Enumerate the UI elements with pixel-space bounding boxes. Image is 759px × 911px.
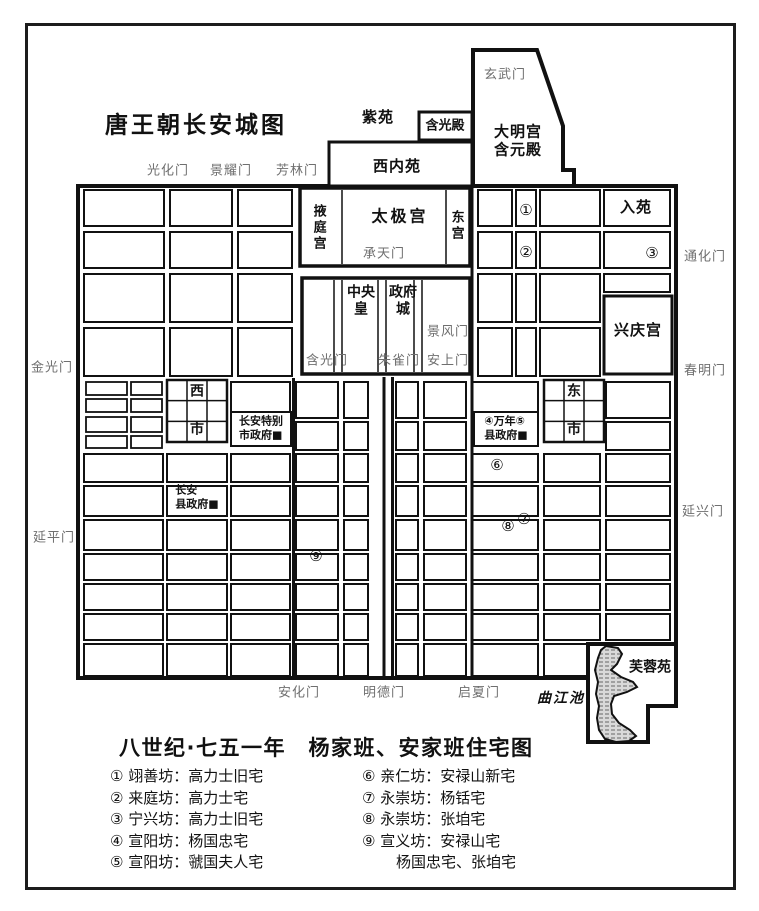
taiji-palace-label: 太极宫 [371,208,428,227]
marker-3: ③ [645,245,658,263]
marker-7: ⑦ [517,511,530,529]
changan-gov-label: 长安 县政府■ [175,483,218,511]
changan-city-map-page: 唐王朝长安城图玄武门紫苑含光殿大明宫 含元殿西内苑光化门景耀门芳林门掖庭宫太极宫… [0,0,759,911]
west-market-shi: 市 [190,422,204,439]
gate-chengtian: 承天门 [363,246,405,261]
ruyuan-label: 入苑 [620,199,652,217]
marker-1: ① [519,202,532,220]
gate-fanglin: 芳林门 [276,163,318,178]
east-market-shi: 市 [567,422,581,439]
legend-column-right: ⑥ 亲仁坊：安禄山新宅⑦ 永崇坊：杨铦宅⑧ 永崇坊：张垍宅⑨ 宣义坊：安禄山宅杨… [362,766,516,874]
marker-2: ② [519,244,532,262]
legend-item-left-3: ④ 宣阳坊：杨国忠宅 [110,831,263,853]
xingqing-palace-label: 兴庆宫 [614,322,662,340]
daming-palace-label: 大明宫 含元殿 [494,123,542,158]
legend-item-left-0: ① 翊善坊：高力士旧宅 [110,766,263,788]
gate-anshang: 安上门 [427,353,469,368]
legend-item-right-4: 杨国忠宅、张垍宅 [396,852,516,874]
gate-xuanwu: 玄武门 [484,67,526,82]
gate-anhua: 安化门 [278,685,320,700]
legend-item-left-2: ③ 宁兴坊：高力士旧宅 [110,809,263,831]
gate-tonghua: 通化门 [684,249,726,264]
east-market-dong: 东 [567,384,581,401]
wannian-gov-label: ④万年⑤ 县政府■ [484,414,527,442]
legend-item-left-1: ② 来庭坊：高力士宅 [110,788,263,810]
gov-city-label: 政府 城 [389,284,417,317]
east-palace-label: 东宫 [448,210,463,242]
gate-jingfeng: 景风门 [427,324,469,339]
marker-6: ⑥ [490,457,503,475]
gate-mingde: 明德门 [363,685,405,700]
gate-qixia: 启夏门 [458,685,500,700]
marker-8: ⑧ [501,518,514,536]
gate-yanxing: 延兴门 [682,504,724,519]
gate-jingyao: 景耀门 [210,163,252,178]
marker-9: ⑨ [309,548,322,566]
west-market-xi: 西 [190,384,204,401]
gate-chunming: 春明门 [684,363,726,378]
gate-yanping: 延平门 [33,530,75,545]
legend-column-left: ① 翊善坊：高力士旧宅② 来庭坊：高力士宅③ 宁兴坊：高力士旧宅④ 宣阳坊：杨国… [110,766,263,874]
gate-guanghua: 光化门 [147,163,189,178]
legend-item-right-1: ⑦ 永崇坊：杨铦宅 [362,788,516,810]
ziyuan-label: 紫苑 [362,109,394,127]
gate-zhuque: 朱雀门 [378,353,420,368]
central-gov-label: 中央 皇 [347,284,375,317]
gate-hanguangmen: 含光门 [306,353,348,368]
legend-item-right-0: ⑥ 亲仁坊：安禄山新宅 [362,766,516,788]
furong-garden-label: 芙蓉苑 [629,660,671,677]
gate-jinguang: 金光门 [31,360,73,375]
legend-title: 八世纪·七五一年 杨家班、安家班住宅图 [119,732,533,762]
legend-item-left-4: ⑤ 宣阳坊：虢国夫人宅 [110,852,263,874]
qujiang-pond-label: 曲江池 [537,691,585,708]
legend-item-right-2: ⑧ 永崇坊：张垍宅 [362,809,516,831]
changan-special-gov-label: 长安特别 市政府■ [239,414,283,442]
hanguang-hall-label: 含光殿 [425,118,464,133]
yeting-palace-label: 掖庭宫 [310,204,325,252]
legend-item-right-3: ⑨ 宣义坊：安禄山宅 [362,831,516,853]
west-inner-park-label: 西内苑 [373,158,421,176]
map-title: 唐王朝长安城图 [105,112,287,139]
